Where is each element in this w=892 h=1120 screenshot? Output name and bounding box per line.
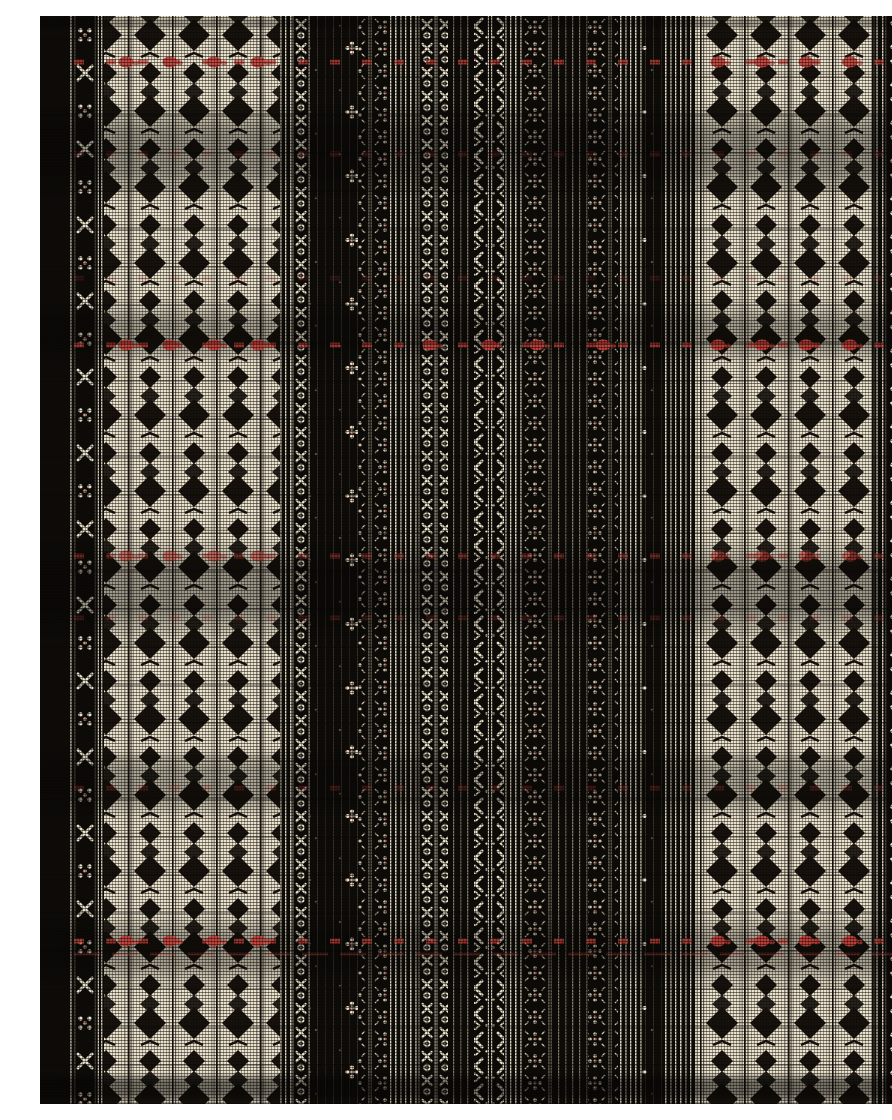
fabric-photo	[40, 16, 892, 1104]
woven-pattern	[40, 16, 892, 1104]
